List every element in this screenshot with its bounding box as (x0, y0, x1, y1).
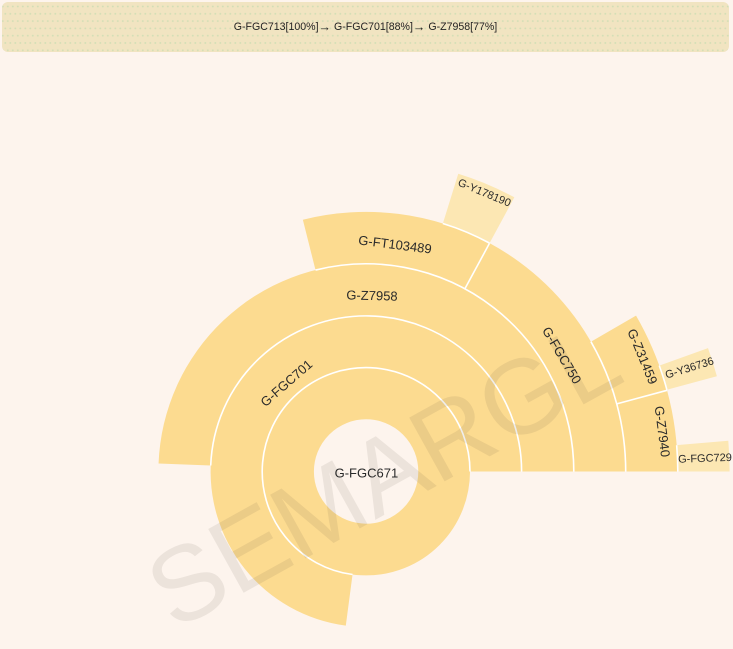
svg-text:G-Z7958: G-Z7958 (346, 287, 398, 303)
svg-text:G-FGC671: G-FGC671 (335, 466, 399, 481)
svg-text:G-FGC729: G-FGC729 (678, 452, 732, 466)
